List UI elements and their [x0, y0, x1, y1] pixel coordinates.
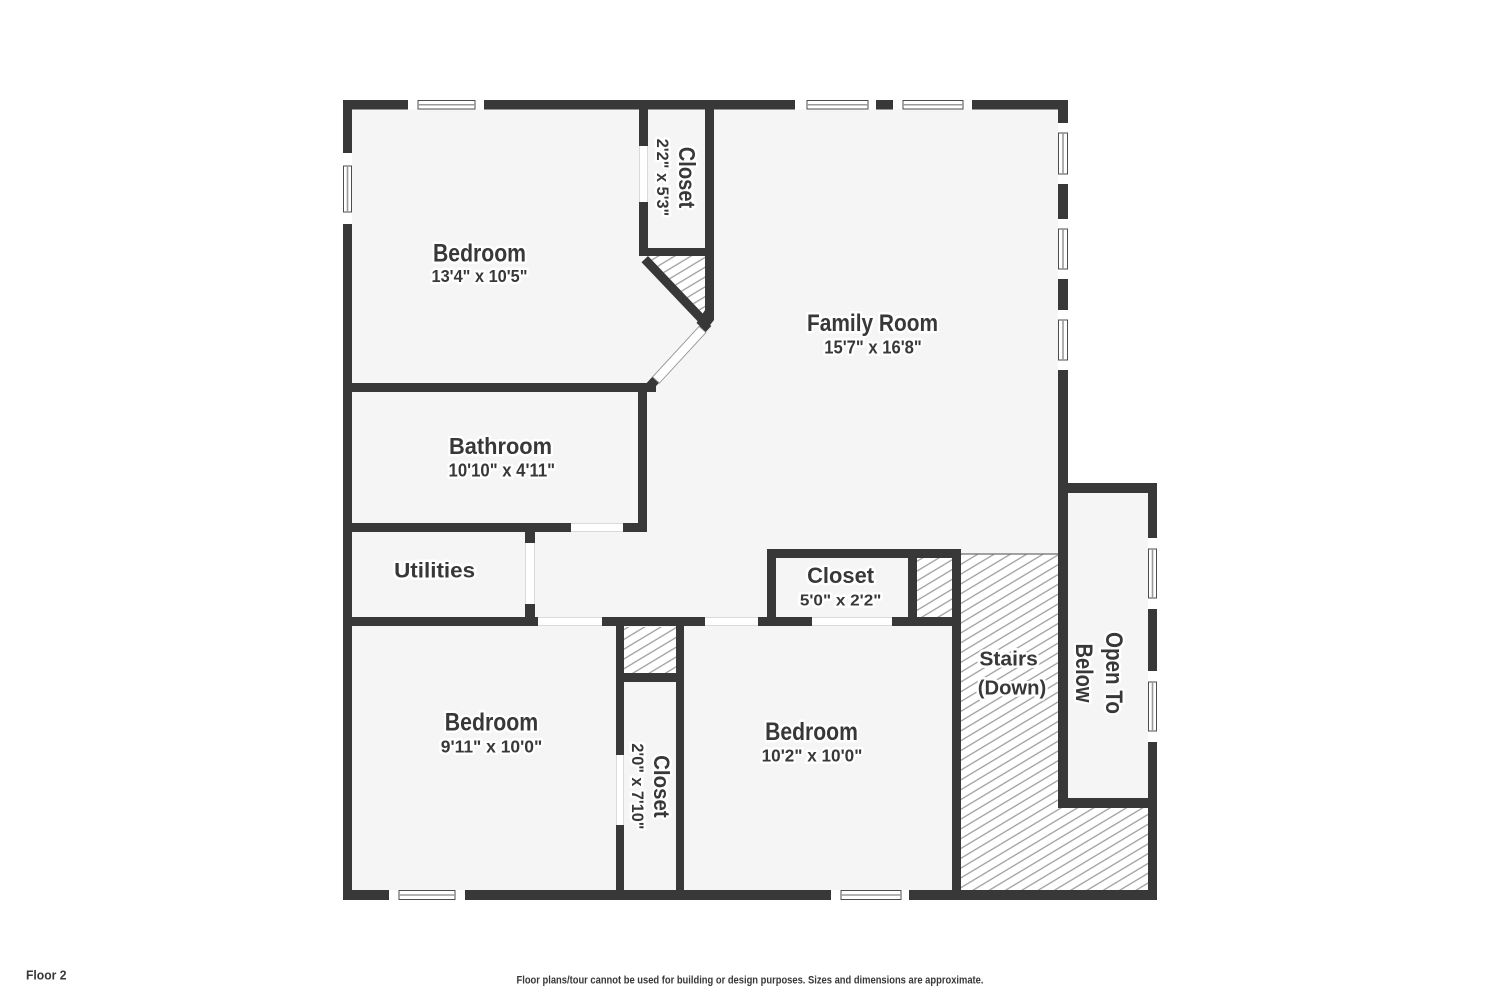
svg-text:Below: Below — [1070, 644, 1097, 703]
svg-text:10'10" x 4'11": 10'10" x 4'11" — [449, 461, 556, 481]
svg-text:Closet: Closet — [674, 147, 700, 209]
svg-text:Bedroom: Bedroom — [445, 709, 539, 736]
svg-text:Closet: Closet — [649, 755, 674, 818]
svg-text:10'2" x 10'0": 10'2" x 10'0" — [762, 746, 863, 766]
svg-text:Floor 2: Floor 2 — [26, 969, 67, 983]
svg-text:15'7" x 16'8": 15'7" x 16'8" — [824, 337, 922, 357]
svg-text:Utilities: Utilities — [394, 559, 475, 583]
svg-text:Floor plans/tour cannot be use: Floor plans/tour cannot be used for buil… — [517, 974, 984, 986]
svg-text:5'0" x 2'2": 5'0" x 2'2" — [800, 592, 882, 609]
svg-text:Closet: Closet — [807, 563, 875, 588]
svg-text:Bathroom: Bathroom — [449, 433, 552, 459]
svg-text:2'0" x 7'10": 2'0" x 7'10" — [628, 743, 647, 829]
svg-text:Family Room: Family Room — [807, 310, 938, 337]
svg-text:9'11" x 10'0": 9'11" x 10'0" — [441, 736, 543, 756]
svg-text:Bedroom: Bedroom — [433, 240, 526, 267]
svg-text:Bedroom: Bedroom — [765, 719, 858, 746]
svg-text:Open To: Open To — [1100, 632, 1127, 714]
svg-text:2'2" x 5'3": 2'2" x 5'3" — [653, 139, 672, 217]
svg-text:(Down): (Down) — [978, 677, 1047, 700]
svg-text:Stairs: Stairs — [979, 648, 1038, 671]
svg-text:13'4" x 10'5": 13'4" x 10'5" — [432, 266, 528, 286]
